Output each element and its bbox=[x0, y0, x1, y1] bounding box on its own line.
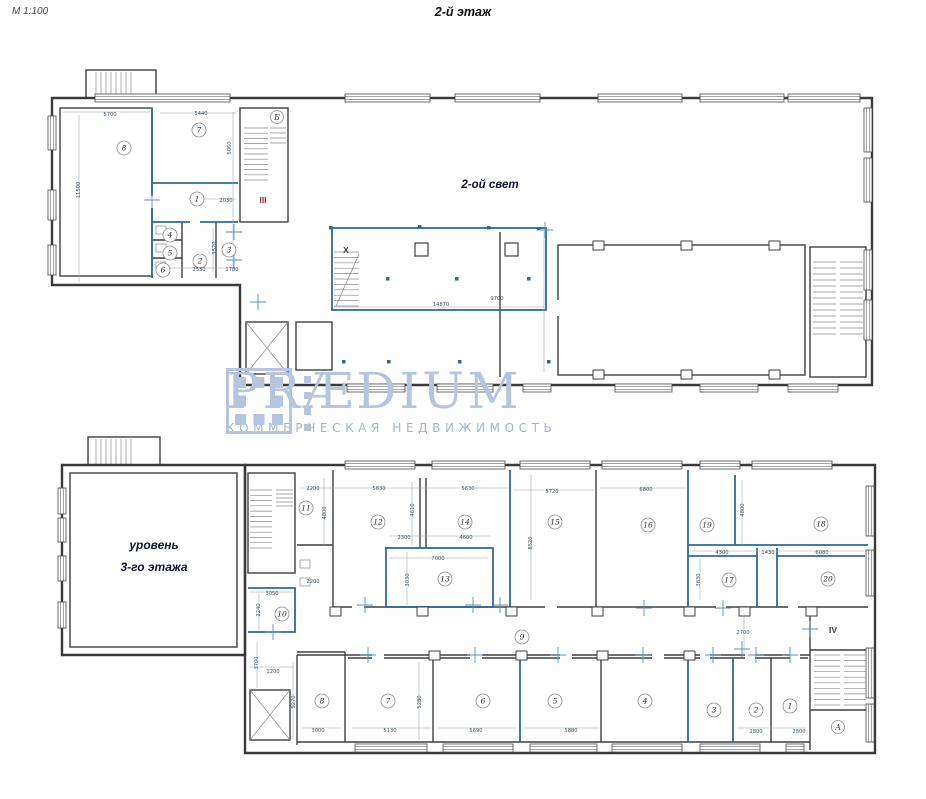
window bbox=[520, 461, 590, 469]
column-marker bbox=[329, 226, 333, 230]
dimension-label: 3050 bbox=[265, 591, 278, 597]
window bbox=[95, 94, 230, 102]
opening-tick bbox=[144, 192, 160, 208]
staircase bbox=[840, 262, 863, 334]
svg-text:15: 15 bbox=[550, 518, 560, 527]
room-label-9: 9 bbox=[515, 630, 529, 644]
pilaster bbox=[516, 651, 527, 660]
dimension-lines bbox=[62, 112, 864, 740]
opening-tick bbox=[265, 624, 281, 640]
room-label-4: 4 bbox=[163, 228, 177, 242]
svg-text:17: 17 bbox=[724, 576, 734, 585]
svg-text:3: 3 bbox=[227, 246, 232, 255]
window bbox=[615, 384, 672, 392]
dimension-label: 2800 bbox=[792, 729, 805, 735]
room-label-19: 19 bbox=[700, 518, 714, 532]
window bbox=[864, 158, 872, 202]
svg-text:8: 8 bbox=[320, 697, 325, 706]
pilaster bbox=[506, 607, 517, 616]
opening-tick bbox=[802, 621, 818, 637]
window bbox=[700, 94, 784, 102]
dimension-label: 6080 bbox=[815, 550, 828, 556]
column-marker bbox=[458, 360, 462, 364]
svg-text:10: 10 bbox=[277, 610, 287, 619]
dimension-label: 9700 bbox=[490, 296, 503, 302]
staircase bbox=[814, 655, 840, 705]
svg-text:19: 19 bbox=[702, 521, 712, 530]
window bbox=[530, 744, 597, 752]
staircase bbox=[334, 252, 359, 306]
window bbox=[355, 744, 427, 752]
dimension-label: 5630 bbox=[461, 486, 474, 492]
opening-tick bbox=[465, 597, 481, 613]
window bbox=[866, 486, 874, 536]
room-label-17: 17 bbox=[722, 573, 736, 587]
column-marker bbox=[455, 277, 459, 281]
column-marker bbox=[418, 225, 422, 229]
svg-text:12: 12 bbox=[373, 518, 383, 527]
dimension-label: 5270 bbox=[291, 695, 297, 708]
staircase bbox=[250, 490, 272, 548]
dimension-label: 4800 bbox=[322, 506, 328, 519]
column-marker bbox=[386, 277, 390, 281]
opening-tick bbox=[636, 600, 652, 616]
window bbox=[443, 744, 513, 752]
pilaster bbox=[681, 370, 692, 379]
window bbox=[48, 116, 56, 150]
svg-text:7: 7 bbox=[386, 697, 391, 706]
room-label-6: 6 bbox=[156, 263, 170, 277]
svg-text:14: 14 bbox=[460, 518, 470, 527]
column-marker bbox=[547, 360, 551, 364]
pilaster bbox=[806, 607, 817, 616]
svg-text:5: 5 bbox=[168, 249, 173, 258]
room-label-11: 11 bbox=[299, 501, 313, 515]
pilaster bbox=[429, 651, 440, 660]
room-label-20: 20 bbox=[821, 572, 835, 586]
room-label-3: 3 bbox=[707, 703, 721, 717]
window bbox=[864, 300, 872, 340]
window bbox=[866, 648, 874, 698]
room-label-3: 3 bbox=[222, 243, 236, 257]
staircase bbox=[844, 655, 866, 705]
svg-text:9: 9 bbox=[520, 633, 525, 642]
dimension-label: 2240 bbox=[256, 603, 262, 616]
window bbox=[345, 461, 415, 469]
dimension-label: 2200 bbox=[306, 486, 319, 492]
column-marker bbox=[387, 360, 391, 364]
window bbox=[58, 556, 66, 581]
dimension-label: 2530 bbox=[192, 267, 205, 273]
opening-tick bbox=[715, 600, 731, 616]
floor-plan-canvas: М 1:100 2-й этаж bbox=[0, 0, 926, 799]
svg-text:1: 1 bbox=[195, 195, 200, 204]
dimension-label: 1430 bbox=[761, 550, 774, 556]
svg-text:13: 13 bbox=[440, 575, 450, 584]
pilaster bbox=[330, 607, 341, 616]
svg-text:7: 7 bbox=[197, 126, 202, 135]
room-label-7: 7 bbox=[192, 123, 206, 137]
window bbox=[700, 461, 740, 469]
floor-plan-drawing: 8714562357005440506011500203035202530178… bbox=[0, 0, 926, 799]
dimension-label: 1780 bbox=[225, 267, 238, 273]
stair-label-III: III bbox=[259, 195, 266, 205]
staircase bbox=[276, 490, 293, 506]
room-label-18: 18 bbox=[814, 517, 828, 531]
window bbox=[58, 488, 66, 514]
room-label-1: 1 bbox=[783, 699, 797, 713]
svg-text:4: 4 bbox=[642, 697, 648, 706]
svg-text:6: 6 bbox=[161, 266, 166, 275]
dimension-label: 3000 bbox=[311, 728, 324, 734]
dimension-label: 2700 bbox=[736, 630, 749, 636]
window bbox=[602, 461, 682, 469]
chimney-hatch bbox=[96, 72, 131, 465]
window bbox=[866, 704, 874, 742]
dimension-label: 5060 bbox=[227, 141, 233, 154]
window bbox=[788, 384, 838, 392]
dimension-label: 3520 bbox=[212, 241, 218, 254]
window bbox=[864, 250, 872, 290]
stair-label-А: А bbox=[834, 723, 841, 732]
dimension-label: 4800 bbox=[740, 503, 746, 516]
pilaster bbox=[684, 607, 695, 616]
opening-tick bbox=[537, 222, 553, 238]
svg-text:20: 20 bbox=[822, 575, 833, 584]
room-label-5: 5 bbox=[163, 246, 177, 260]
pilaster bbox=[769, 370, 780, 379]
room-label-15: 15 bbox=[548, 515, 562, 529]
dimension-label: 4610 bbox=[410, 503, 416, 516]
opening-tick bbox=[467, 647, 483, 663]
opening-tick bbox=[550, 647, 566, 663]
dimension-label: 6800 bbox=[639, 487, 652, 493]
window bbox=[612, 744, 682, 752]
column-marker bbox=[527, 277, 531, 281]
window bbox=[48, 245, 56, 275]
staircase bbox=[813, 262, 836, 334]
column bbox=[505, 243, 518, 256]
pilaster bbox=[739, 607, 750, 616]
room-label-12: 12 bbox=[371, 515, 385, 529]
pilaster bbox=[597, 651, 608, 660]
window bbox=[866, 550, 874, 596]
column-marker bbox=[342, 360, 346, 364]
window bbox=[455, 94, 540, 102]
window bbox=[345, 94, 430, 102]
svg-text:4: 4 bbox=[167, 231, 173, 240]
pilaster bbox=[417, 607, 428, 616]
column-marker bbox=[487, 226, 491, 230]
room-label-10: 10 bbox=[275, 607, 289, 621]
pilaster bbox=[684, 651, 695, 660]
window bbox=[347, 384, 405, 392]
pilaster bbox=[592, 607, 603, 616]
window bbox=[437, 384, 493, 392]
room-label-2: 2 bbox=[193, 254, 207, 268]
dimension-label: 2200 bbox=[306, 579, 319, 585]
window bbox=[598, 94, 682, 102]
window bbox=[523, 384, 551, 392]
window bbox=[786, 744, 804, 752]
opening-tick bbox=[748, 647, 764, 663]
svg-text:2: 2 bbox=[197, 257, 203, 266]
dimension-label: 5280 bbox=[417, 695, 423, 708]
dimension-label: 5440 bbox=[194, 111, 207, 117]
dimension-label: 5720 bbox=[545, 489, 558, 495]
svg-text:11: 11 bbox=[301, 504, 311, 513]
window bbox=[788, 94, 860, 102]
stair-label-IV: IV bbox=[829, 625, 837, 635]
dimension-label: 3030 bbox=[405, 573, 411, 586]
dimension-label: 4600 bbox=[459, 535, 472, 541]
svg-text:5: 5 bbox=[553, 697, 558, 706]
staircase bbox=[244, 128, 268, 180]
pilaster bbox=[593, 241, 604, 250]
stair-label-Б: Б bbox=[273, 113, 280, 122]
dimension-label: 14870 bbox=[433, 302, 450, 308]
dimension-label: 5830 bbox=[372, 486, 385, 492]
dimension-label: 1200 bbox=[266, 669, 279, 675]
svg-text:1: 1 bbox=[788, 702, 793, 711]
window bbox=[58, 518, 66, 542]
opening-tick bbox=[250, 294, 266, 310]
dimension-label: 7000 bbox=[431, 556, 444, 562]
room-label-7: 7 bbox=[381, 694, 395, 708]
room-label-14: 14 bbox=[458, 515, 472, 529]
room-label-8: 8 bbox=[315, 694, 329, 708]
staircase bbox=[270, 128, 286, 143]
room-label-2: 2 bbox=[749, 703, 763, 717]
window bbox=[700, 384, 758, 392]
room-label-8: 8 bbox=[117, 141, 131, 155]
dimension-label: 5130 bbox=[383, 728, 396, 734]
opening-tick bbox=[705, 647, 721, 663]
dimension-label: 2030 bbox=[219, 198, 232, 204]
dimension-label: 4300 bbox=[715, 550, 728, 556]
room-label-13: 13 bbox=[438, 572, 452, 586]
svg-text:8: 8 bbox=[122, 144, 127, 153]
window bbox=[432, 461, 505, 469]
window bbox=[700, 744, 760, 752]
column bbox=[415, 243, 428, 256]
opening-tick bbox=[635, 647, 651, 663]
window bbox=[864, 108, 872, 152]
svg-text:6: 6 bbox=[481, 697, 486, 706]
dimension-label: 5880 bbox=[564, 728, 577, 734]
pilaster bbox=[769, 241, 780, 250]
dimension-label: 2300 bbox=[397, 535, 410, 541]
svg-text:2: 2 bbox=[753, 706, 759, 715]
opening-tick bbox=[226, 224, 242, 240]
svg-text:16: 16 bbox=[643, 521, 653, 530]
opening-tick bbox=[782, 647, 798, 663]
opening-tick bbox=[360, 647, 376, 663]
dimension-label: 3630 bbox=[696, 573, 702, 586]
level-label-line2: 3-го этажа bbox=[120, 560, 187, 574]
room-label-5: 5 bbox=[548, 694, 562, 708]
window bbox=[58, 602, 66, 628]
room-label-4: 4 bbox=[638, 694, 652, 708]
room-label-6: 6 bbox=[476, 694, 490, 708]
second-light-label: 2-ой свет bbox=[460, 179, 518, 191]
svg-text:3: 3 bbox=[712, 706, 717, 715]
svg-text:18: 18 bbox=[816, 520, 826, 529]
window bbox=[752, 461, 832, 469]
room-label-16: 16 bbox=[641, 518, 655, 532]
dimension-label: 3700 bbox=[254, 656, 260, 669]
room-label-1: 1 bbox=[190, 192, 204, 206]
level-label-line1: уровень bbox=[128, 538, 178, 552]
pilaster bbox=[681, 241, 692, 250]
dimension-label: 2800 bbox=[749, 729, 762, 735]
dimension-label: 5700 bbox=[103, 112, 116, 118]
dimension-label: 8520 bbox=[528, 536, 534, 549]
dimension-label: 5690 bbox=[469, 728, 482, 734]
dimension-label: 11500 bbox=[76, 182, 82, 199]
window bbox=[48, 190, 56, 220]
pilaster bbox=[593, 370, 604, 379]
stair-label-X: X bbox=[343, 245, 349, 255]
chimney-blocks bbox=[86, 70, 160, 465]
